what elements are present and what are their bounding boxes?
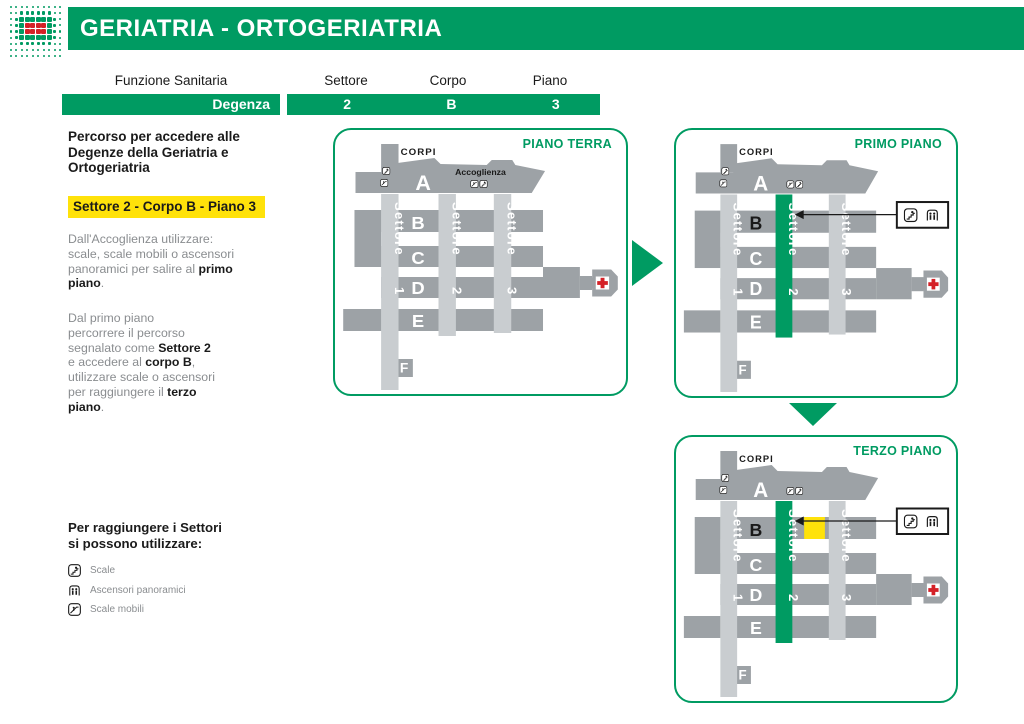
legend-title: Per raggiungere i Settorisi possono util… <box>68 520 222 551</box>
logo-row <box>8 16 63 22</box>
sector-band-number: 3 <box>505 287 520 294</box>
location-column-headers: Settore Corpo Piano <box>295 73 601 91</box>
settore-column-header: Settore <box>295 73 397 91</box>
floor-map-primo-piano: Settore1Settore2Settore3ABCDEFCORPI <box>676 130 956 396</box>
piano-value: 3 <box>504 94 608 115</box>
function-value-bar: Degenza <box>62 94 280 115</box>
corpo-c-label: C <box>749 249 762 269</box>
title-bar: GERIATRIA - ORTOGERIATRIA <box>68 7 1024 50</box>
logo-row <box>8 4 63 10</box>
sector-band-label: Settore <box>505 202 520 256</box>
instructions-paragraph-1: Dall'Accoglienza utilizzare:scale, scale… <box>68 232 303 291</box>
text-line: panoramici per salire al primo <box>68 262 303 277</box>
stairs-icon <box>904 515 916 528</box>
corpo-d-label: D <box>749 585 762 605</box>
arrow-right-icon <box>632 240 663 286</box>
logo-row <box>8 53 63 59</box>
panel-title-primo-piano: PRIMO PIANO <box>855 137 942 151</box>
text-line: si possono utilizzare: <box>68 536 222 552</box>
floor-map-piano-terra: Settore1Settore2Settore3ABCDEFCORPIAccog… <box>335 130 626 394</box>
page-title: GERIATRIA - ORTOGERIATRIA <box>68 7 1024 50</box>
east-extension <box>876 268 911 299</box>
text-line: Dall'Accoglienza utilizzare: <box>68 232 303 247</box>
text-line: Dal primo piano <box>68 311 303 326</box>
logo-row <box>8 41 63 47</box>
floor-map: Settore1Settore2Settore3ABCDEFCORPI <box>676 130 956 396</box>
corpi-caption: CORPI <box>739 147 774 158</box>
corpo-a-label: A <box>753 479 768 502</box>
legend-item: Scale mobili <box>68 600 186 620</box>
logo-row <box>8 35 63 41</box>
escalator-icon <box>471 180 478 187</box>
sector-band-number: 1 <box>392 287 407 294</box>
east-extension <box>876 574 911 605</box>
elevator-icon <box>927 210 937 220</box>
elevator-icon <box>68 584 81 597</box>
hospital-logo <box>8 4 63 59</box>
text-line: e accedere al corpo B, <box>68 355 303 370</box>
panel-primo-piano: Settore1Settore2Settore3ABCDEFCORPI PRIM… <box>674 128 958 398</box>
red-cross-icon <box>928 282 938 286</box>
corpo-b-label: B <box>749 214 762 234</box>
corpo-a-label: A <box>415 171 431 195</box>
stairs-icon <box>796 181 803 188</box>
piano-column-header: Piano <box>499 73 601 91</box>
stairs-icon <box>480 180 487 187</box>
wayfinding-sheet: GERIATRIA - ORTOGERIATRIA Funzione Sanit… <box>0 0 1024 724</box>
west-block-e <box>684 310 720 332</box>
text-line: Per raggiungere i Settori <box>68 520 222 536</box>
stairs-icon <box>904 209 916 222</box>
floor-map: Settore1Settore2Settore3ABCDEFCORPIAccog… <box>335 130 626 394</box>
escalator-icon <box>380 179 387 186</box>
panel-piano-terra: Settore1Settore2Settore3ABCDEFCORPIAccog… <box>333 128 628 396</box>
corpo-d-label: D <box>749 279 762 299</box>
corpi-caption: CORPI <box>739 453 774 464</box>
stairs-icon <box>796 487 803 494</box>
text-line: Degenze della Geriatria e <box>68 145 298 161</box>
text-line: per raggiungere il terzo <box>68 385 303 400</box>
corpo-column-header: Corpo <box>397 73 499 91</box>
corpo-c-label: C <box>411 248 424 268</box>
text-line: utilizzare scale o ascensori <box>68 370 303 385</box>
floor-map-terzo-piano: Settore1Settore2Settore3ABCDEFCORPI <box>676 437 956 701</box>
stairs-icon <box>722 474 729 481</box>
sector-band-label: Settore <box>731 203 746 257</box>
red-cross-icon <box>928 588 938 592</box>
instructions-paragraph-2: Dal primo pianopercorrere il percorsoseg… <box>68 311 303 415</box>
text-line: Percorso per accedere alle <box>68 129 298 145</box>
corpo-f-label: F <box>738 667 746 682</box>
logo-row <box>8 29 63 35</box>
logo-row <box>8 22 63 28</box>
text-line: piano. <box>68 276 303 291</box>
stairs-icon <box>383 167 390 174</box>
corpo-d-label: D <box>411 278 424 298</box>
sector-band-label: Settore <box>786 509 801 563</box>
corpo-e-label: E <box>750 312 762 332</box>
sector-band-number: 1 <box>731 594 746 601</box>
destination-room <box>804 517 825 539</box>
west-block-e <box>343 309 381 331</box>
corpo-e-wing <box>720 310 876 332</box>
escalator-icon <box>787 181 794 188</box>
route-intro-text: Percorso per accedere alleDegenze della … <box>68 129 298 176</box>
corpo-e-label: E <box>750 618 762 638</box>
sector-band-label: Settore <box>839 509 854 563</box>
corpi-caption: CORPI <box>401 147 437 158</box>
corpo-f-label: F <box>400 361 408 376</box>
corpo-a-label: A <box>753 172 768 195</box>
sector-band-number: 1 <box>731 288 746 295</box>
settore-value: 2 <box>295 94 399 115</box>
escalator-icon <box>720 486 727 493</box>
sector-band-label: Settore <box>839 203 854 257</box>
panel-terzo-piano: Settore1Settore2Settore3ABCDEFCORPI TERZ… <box>674 435 958 703</box>
legend-label: Scale mobili <box>90 604 144 615</box>
floor-map: Settore1Settore2Settore3ABCDEFCORPI <box>676 437 956 701</box>
legend-label: Ascensori panoramici <box>90 585 186 596</box>
west-block-e <box>684 616 720 638</box>
location-value-bar: 2 B 3 <box>287 94 600 115</box>
sector-band-number: 2 <box>786 288 801 295</box>
legend-item: Scale <box>68 561 186 581</box>
escalator-icon <box>787 487 794 494</box>
corpo-f-label: F <box>738 362 746 377</box>
sector-band-number: 2 <box>786 594 801 601</box>
sector-band-label: Settore <box>786 203 801 257</box>
sector-band-number: 3 <box>839 288 854 295</box>
stairs-icon <box>68 564 81 577</box>
corpo-b-label: B <box>411 213 424 233</box>
east-extension <box>543 267 580 298</box>
stairs-icon <box>722 168 729 175</box>
text-line: piano. <box>68 400 303 415</box>
sector-band-number: 3 <box>839 594 854 601</box>
panel-title-terzo-piano: TERZO PIANO <box>853 444 942 458</box>
destination-highlight: Settore 2 - Corpo B - Piano 3 <box>68 196 265 218</box>
logo-row <box>8 47 63 53</box>
text-line: scale, scale mobili o ascensori <box>68 247 303 262</box>
legend-label: Scale <box>90 565 115 576</box>
corpo-e-label: E <box>412 311 424 331</box>
corpo-e-wing <box>720 616 876 638</box>
sector-band-label: Settore <box>392 202 407 256</box>
text-line: Ortogeriatria <box>68 160 298 176</box>
legend-item: Ascensori panoramici <box>68 581 186 601</box>
west-block <box>354 210 381 267</box>
sector-band-number: 2 <box>449 287 464 294</box>
sector-band-label: Settore <box>731 509 746 563</box>
function-column-header: Funzione Sanitaria <box>62 73 280 91</box>
corpo-b-label: B <box>749 520 762 540</box>
corpo-value: B <box>399 94 503 115</box>
escalator-icon <box>720 180 727 187</box>
red-cross-icon <box>597 281 608 285</box>
arrow-down-icon <box>789 403 837 426</box>
sector-band-label: Settore <box>449 202 464 256</box>
accoglienza-label: Accoglienza <box>455 167 506 177</box>
corpo-e-wing <box>381 309 543 331</box>
elevator-icon <box>927 517 937 527</box>
panel-title-piano-terra: PIANO TERRA <box>523 137 612 151</box>
west-block <box>695 517 721 574</box>
logo-row <box>8 10 63 16</box>
west-block <box>695 211 721 268</box>
escalator-icon <box>68 603 81 616</box>
text-line: segnalato come Settore 2 <box>68 341 303 356</box>
transport-legend: ScaleAscensori panoramiciScale mobili <box>68 561 186 620</box>
corpo-c-label: C <box>749 555 762 575</box>
text-line: percorrere il percorso <box>68 326 303 341</box>
